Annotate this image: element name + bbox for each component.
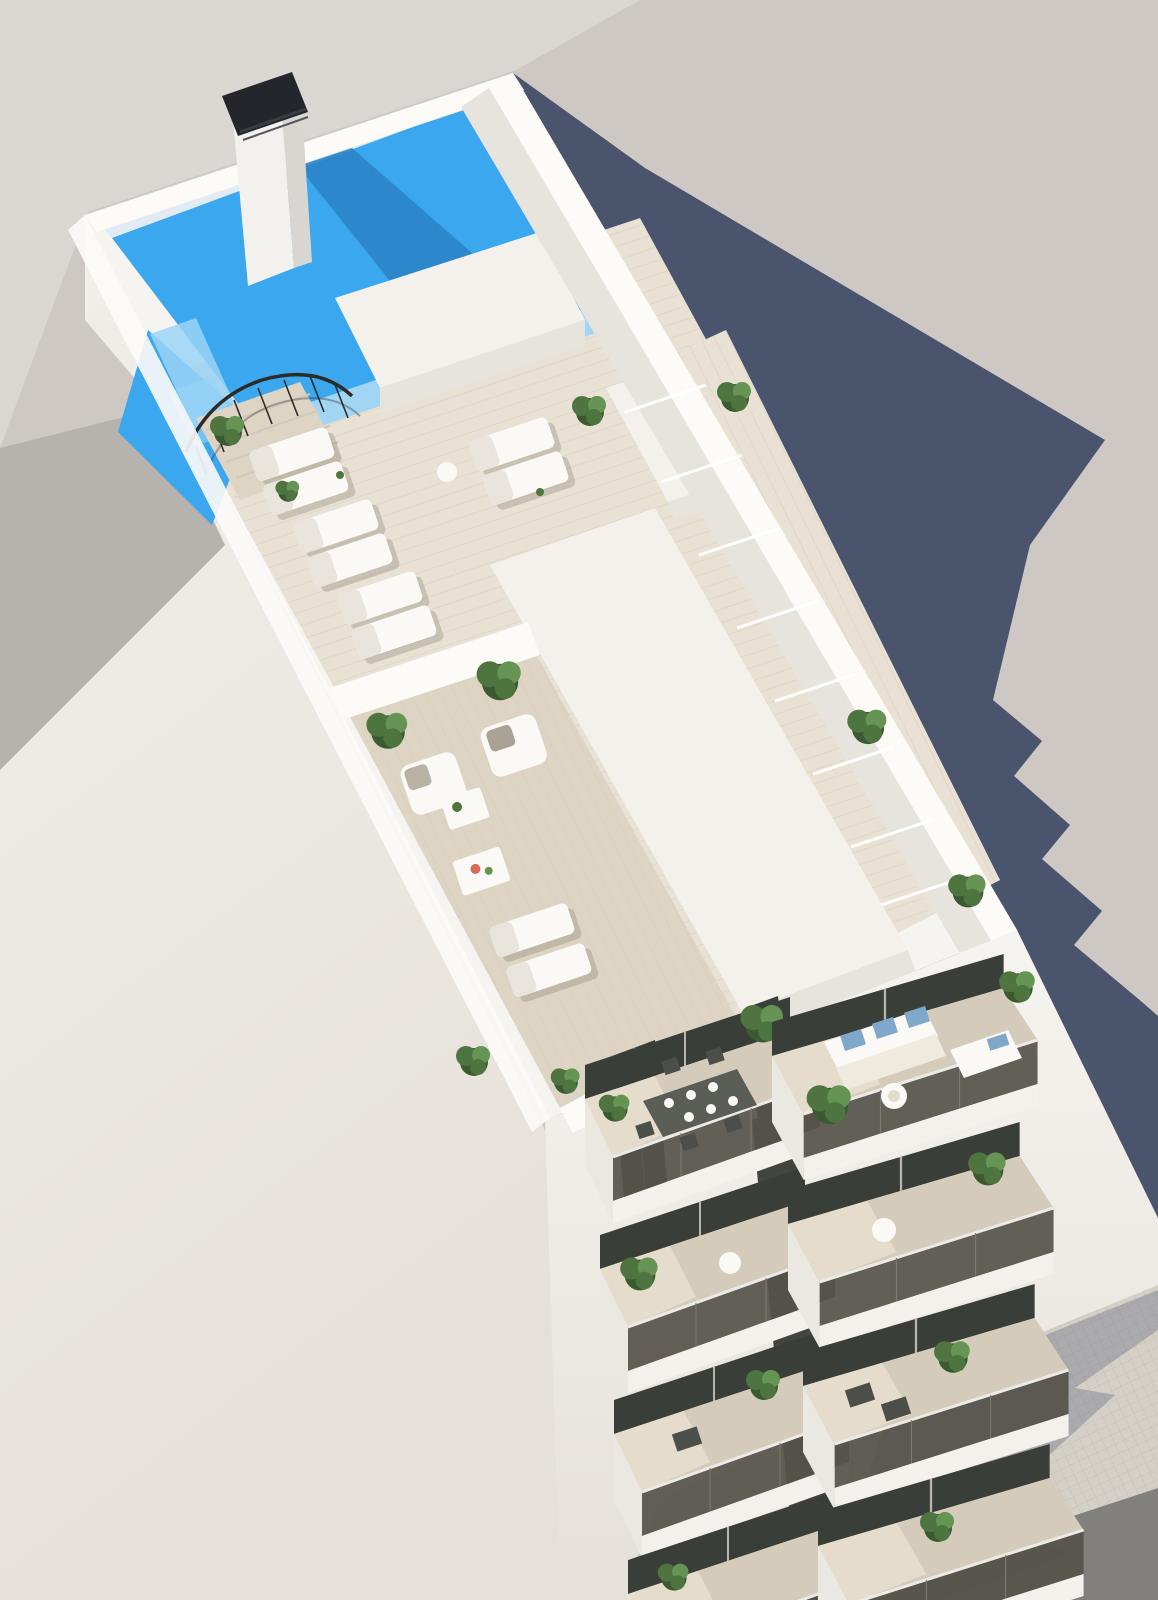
side-table	[437, 462, 457, 482]
round-table	[872, 1218, 896, 1242]
towel-accent	[336, 471, 344, 479]
towel-accent	[536, 488, 544, 496]
round-table	[719, 1252, 741, 1274]
building-aerial-render	[0, 0, 1158, 1600]
render-canvas	[0, 0, 1158, 1600]
